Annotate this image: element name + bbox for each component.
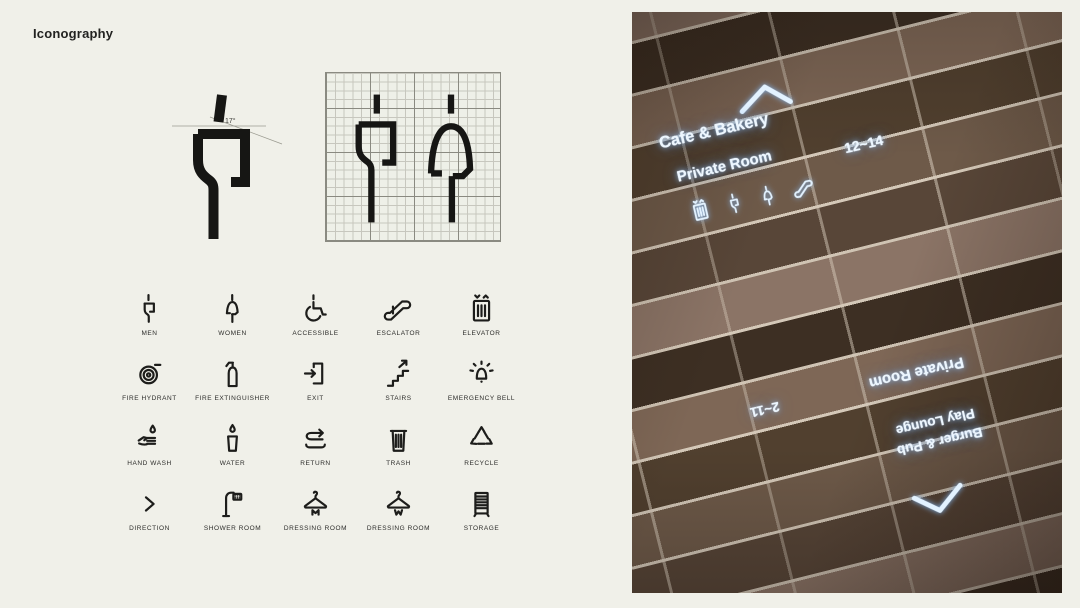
projected-elevator-icon: [685, 194, 717, 227]
accessible-icon: [298, 291, 333, 326]
floor-projection-photo: Cafe & Bakery Private Room 12~14 P: [632, 12, 1062, 593]
icon-cell-dressing-room-w: DRESSING ROOM: [357, 482, 440, 547]
men-icon: [132, 291, 167, 326]
women-grid-glyph: [422, 90, 480, 226]
icon-label: STAIRS: [385, 395, 411, 402]
icon-label: SHOWER ROOM: [204, 525, 261, 532]
icon-label: HAND WASH: [127, 460, 171, 467]
icon-label: ACCESSIBLE: [292, 330, 338, 337]
angle-label: 17°: [225, 117, 236, 125]
icon-label: RETURN: [300, 460, 330, 467]
icon-cell-fire-hydrant: FIRE HYDRANT: [108, 352, 191, 417]
men-grid-glyph: [346, 90, 404, 226]
trash-icon: [381, 421, 416, 456]
icon-cell-women: WOMEN: [191, 287, 274, 352]
photo-shading: [632, 12, 1062, 593]
icon-label: STORAGE: [464, 525, 500, 532]
icon-cell-stairs: STAIRS: [357, 352, 440, 417]
dressing-room-m-icon: [298, 486, 333, 521]
men-glyph-large: [198, 95, 245, 239]
exit-icon: [298, 356, 333, 391]
icon-cell-trash: TRASH: [357, 417, 440, 482]
water-icon: [215, 421, 250, 456]
icon-cell-direction: DIRECTION: [108, 482, 191, 547]
icon-cell-exit: EXIT: [274, 352, 357, 417]
icon-label: FIRE EXTINGUISHER: [195, 395, 270, 402]
icon-cell-hand-wash: HAND WASH: [108, 417, 191, 482]
icon-label: DRESSING ROOM: [284, 525, 347, 532]
fire-extinguisher-icon: [215, 356, 250, 391]
icon-cell-dressing-room-m: DRESSING ROOM: [274, 482, 357, 547]
icon-label: DIRECTION: [129, 525, 170, 532]
icon-label: DRESSING ROOM: [367, 525, 430, 532]
grid-construction-diagram: [325, 72, 501, 242]
icon-label: EXIT: [307, 395, 324, 402]
icon-cell-emergency-bell: EMERGENCY BELL: [440, 352, 523, 417]
icon-label: FIRE HYDRANT: [122, 395, 177, 402]
icon-cell-return: RETURN: [274, 417, 357, 482]
icon-cell-escalator: ESCALATOR: [357, 287, 440, 352]
icon-label: ELEVATOR: [463, 330, 501, 337]
icon-cell-accessible: ACCESSIBLE: [274, 287, 357, 352]
icon-cell-water: WATER: [191, 417, 274, 482]
icon-grid: MEN WOMEN ACCESSIBLE ESCALATOR: [108, 287, 523, 547]
projected-men-icon: [720, 188, 749, 219]
elevator-icon: [464, 291, 499, 326]
construction-diagram: 17°: [168, 82, 298, 247]
icon-cell-fire-extinguisher: FIRE EXTINGUISHER: [191, 352, 274, 417]
return-icon: [298, 421, 333, 456]
icon-label: MEN: [141, 330, 157, 337]
icon-cell-recycle: RECYCLE: [440, 417, 523, 482]
emergency-bell-icon: [464, 356, 499, 391]
hand-wash-icon: [132, 421, 167, 456]
icon-cell-storage: STORAGE: [440, 482, 523, 547]
fire-hydrant-icon: [132, 356, 167, 391]
icon-label: EMERGENCY BELL: [448, 395, 515, 402]
icon-label: WOMEN: [218, 330, 246, 337]
women-icon: [215, 291, 250, 326]
storage-icon: [464, 486, 499, 521]
icon-cell-shower-room: SHOWER ROOM: [191, 482, 274, 547]
icon-label: WATER: [220, 460, 246, 467]
shower-room-icon: [215, 486, 250, 521]
icon-cell-elevator: ELEVATOR: [440, 287, 523, 352]
icon-label: RECYCLE: [464, 460, 499, 467]
projected-women-icon: [753, 180, 782, 211]
escalator-icon: [381, 291, 416, 326]
icon-cell-men: MEN: [108, 287, 191, 352]
dressing-room-w-icon: [381, 486, 416, 521]
page-title: Iconography: [33, 26, 113, 41]
direction-icon: [132, 486, 167, 521]
icon-label: TRASH: [386, 460, 411, 467]
stairs-icon: [381, 356, 416, 391]
icon-label: ESCALATOR: [377, 330, 421, 337]
recycle-icon: [464, 421, 499, 456]
